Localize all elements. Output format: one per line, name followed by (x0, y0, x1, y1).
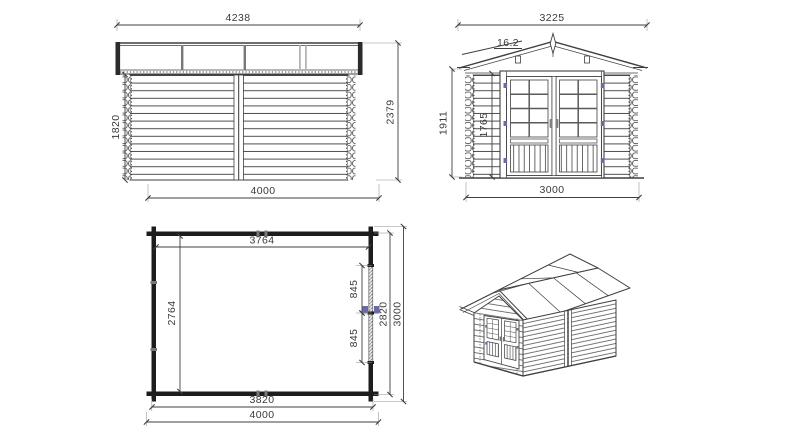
roof-finial-icon (550, 34, 556, 54)
dim-side-base-width-label: 4000 (251, 185, 276, 197)
roof-post (244, 46, 246, 70)
log-ends-right (630, 75, 638, 178)
dim-plan-inner-base-width-label: 3820 (250, 394, 275, 406)
floor-plan-view: 3764 2764 845 845 2820 3000 3820 4000 (147, 227, 408, 427)
dim-plan-door-leaf-upper-label: 845 (348, 280, 360, 299)
gable-bracket (516, 56, 521, 63)
wall-batten (234, 75, 239, 180)
roof-post (299, 46, 301, 70)
front-elevation-view: 3225 16.2 (437, 12, 648, 202)
dim-plan-inner-depth-label: 2764 (166, 301, 178, 326)
plan-wall-right-lower (369, 363, 374, 402)
dim-plan-outer-depth-label: 3000 (391, 302, 403, 327)
dim-plan-base-width-label: 4000 (250, 409, 275, 421)
door-handle-icon (363, 306, 369, 314)
wall-batten (565, 311, 568, 368)
wall-batten (569, 310, 572, 367)
dim-roof-angle-label: 16.2 (497, 37, 519, 49)
dim-plan-door-leaf-lower-label: 845 (348, 329, 360, 348)
door-handle-icon (556, 119, 559, 128)
door-handle-icon (503, 337, 505, 342)
door-handle-icon (550, 119, 553, 128)
roof-post (181, 46, 183, 70)
barge-board-left (116, 42, 121, 75)
door-mid-rail (511, 139, 549, 143)
door-astragal (552, 77, 556, 176)
door-slat-panel-3d (487, 342, 499, 358)
dim-plan-inner-width-label: 3764 (250, 235, 275, 247)
log-wall-right (604, 75, 630, 178)
log-ends-right (348, 75, 356, 180)
dim-front-base-width-label: 3000 (540, 184, 565, 196)
door-mid-rail (560, 139, 598, 143)
technical-drawing-page: 4238 1820 2379 4000 (0, 0, 794, 446)
gable-bracket (585, 56, 590, 63)
door-handle-icon (500, 337, 502, 342)
barge-board-right (358, 42, 363, 75)
wall-batten (239, 75, 244, 180)
plan-wall-left (152, 227, 157, 402)
side-elevation-view: 4238 1820 2379 4000 (110, 12, 402, 202)
perspective-view (460, 254, 631, 376)
dim-side-wall-height-label: 1820 (110, 115, 122, 140)
dim-front-wall-height-label: 1765 (478, 113, 490, 138)
dim-front-roof-width-label: 3225 (540, 12, 565, 24)
door-slat-panel-3d (505, 345, 517, 361)
log-ends-left (123, 75, 131, 180)
dim-front-total-height-label: 1911 (437, 111, 449, 135)
door-slat-panel-right (560, 145, 598, 172)
plan-wall-right-upper (369, 227, 374, 266)
log-ends-left (465, 75, 473, 178)
door-slat-panel-left (511, 145, 549, 172)
technical-drawing-canvas: 4238 1820 2379 4000 (0, 0, 794, 446)
dim-plan-outer-depth-walls-label: 2820 (377, 302, 389, 327)
roof-post (305, 46, 307, 70)
dim-side-roof-width-label: 4238 (226, 12, 251, 24)
dim-side-total-height-label: 2379 (384, 100, 396, 125)
